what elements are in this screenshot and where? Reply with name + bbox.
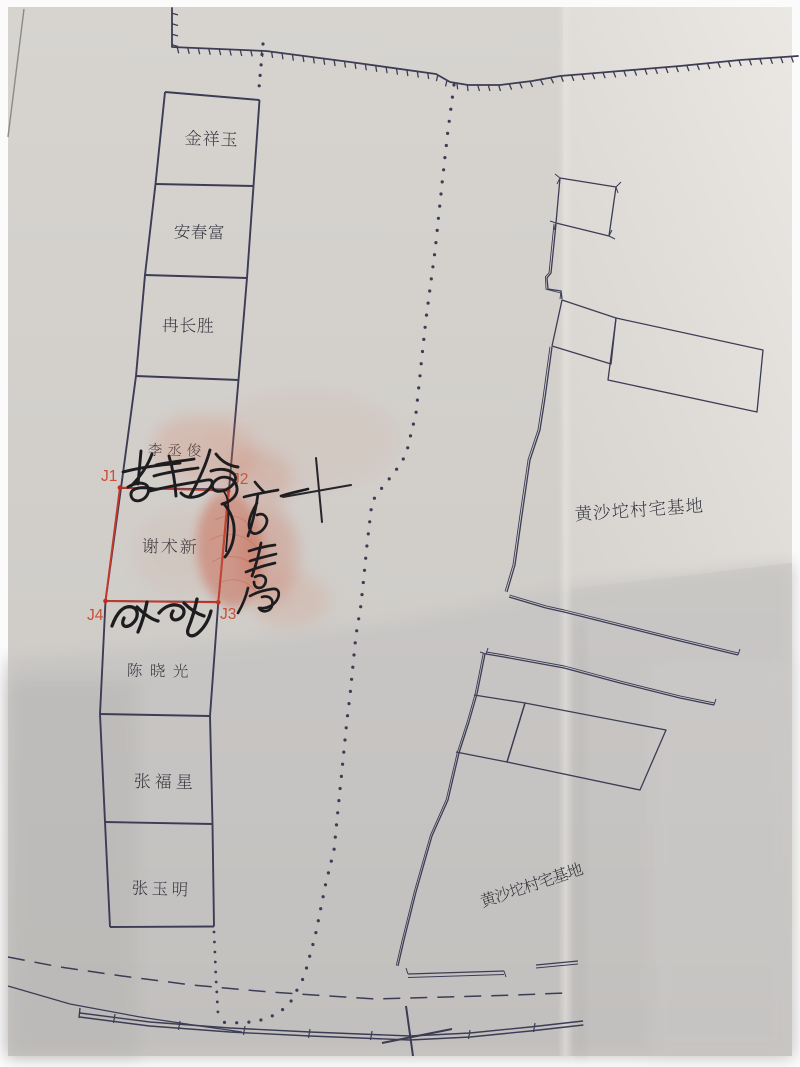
svg-text:J1: J1 bbox=[101, 468, 117, 485]
svg-text:J3: J3 bbox=[220, 606, 236, 623]
svg-text:J4: J4 bbox=[87, 607, 104, 624]
